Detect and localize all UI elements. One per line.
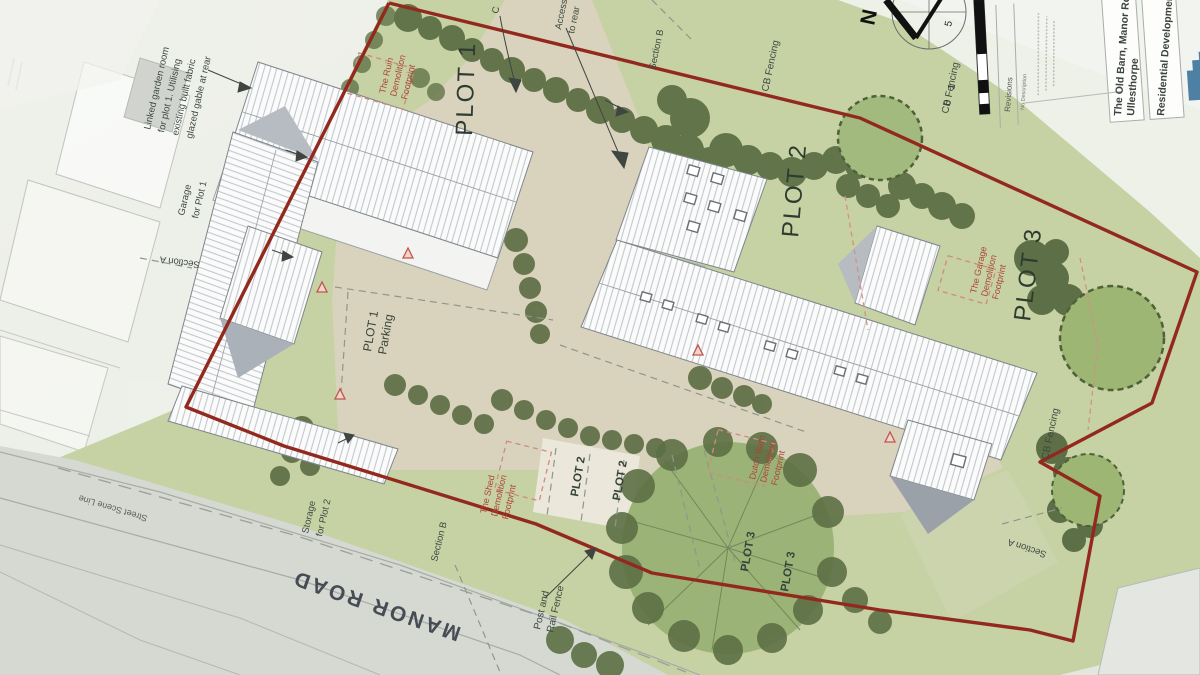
round-tree-east — [1060, 286, 1164, 390]
round-tree-north — [838, 96, 922, 180]
site-plan-sheet: N 5 1 0 Revisions No Description The Old… — [0, 0, 1200, 675]
site-plan-drawing: N 5 1 0 Revisions No Description The Old… — [0, 0, 1200, 675]
label-plot1: PLOT 1 — [451, 41, 481, 136]
